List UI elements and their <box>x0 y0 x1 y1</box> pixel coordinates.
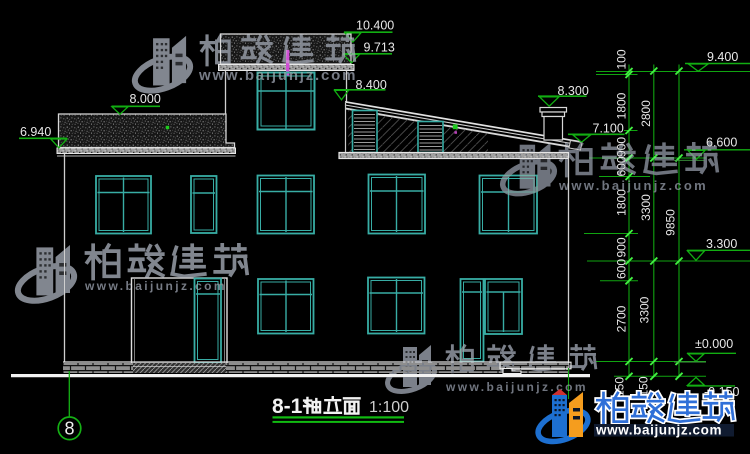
svg-text:7.100: 7.100 <box>593 122 624 136</box>
svg-text:3300: 3300 <box>639 194 653 221</box>
svg-text:www.baijunjz.com: www.baijunjz.com <box>198 67 357 84</box>
svg-text:100: 100 <box>615 49 629 69</box>
svg-text:www.baijunjz.com: www.baijunjz.com <box>84 279 227 293</box>
svg-text:10.400: 10.400 <box>356 19 394 33</box>
svg-text:1:100: 1:100 <box>369 399 409 416</box>
svg-text:www.baijunjz.com: www.baijunjz.com <box>445 380 588 394</box>
svg-text:3300: 3300 <box>638 296 652 323</box>
svg-text:www.baijunjz.com: www.baijunjz.com <box>558 178 708 193</box>
svg-text:8.000: 8.000 <box>130 92 161 106</box>
svg-text:8: 8 <box>64 419 74 439</box>
svg-text:2800: 2800 <box>639 100 653 127</box>
svg-text:600: 600 <box>615 259 629 279</box>
svg-text:1800: 1800 <box>615 92 629 119</box>
svg-text:www.baijunjz.com: www.baijunjz.com <box>595 423 722 438</box>
svg-text:±0.000: ±0.000 <box>695 337 733 351</box>
svg-text:9.400: 9.400 <box>707 50 738 64</box>
svg-text:6.940: 6.940 <box>20 125 51 139</box>
svg-text:9850: 9850 <box>664 209 678 236</box>
svg-text:2700: 2700 <box>615 305 629 332</box>
svg-text:9.713: 9.713 <box>364 41 395 55</box>
svg-text:3.300: 3.300 <box>706 237 737 251</box>
svg-text:8-1: 8-1 <box>272 395 303 418</box>
svg-text:900: 900 <box>615 237 629 257</box>
